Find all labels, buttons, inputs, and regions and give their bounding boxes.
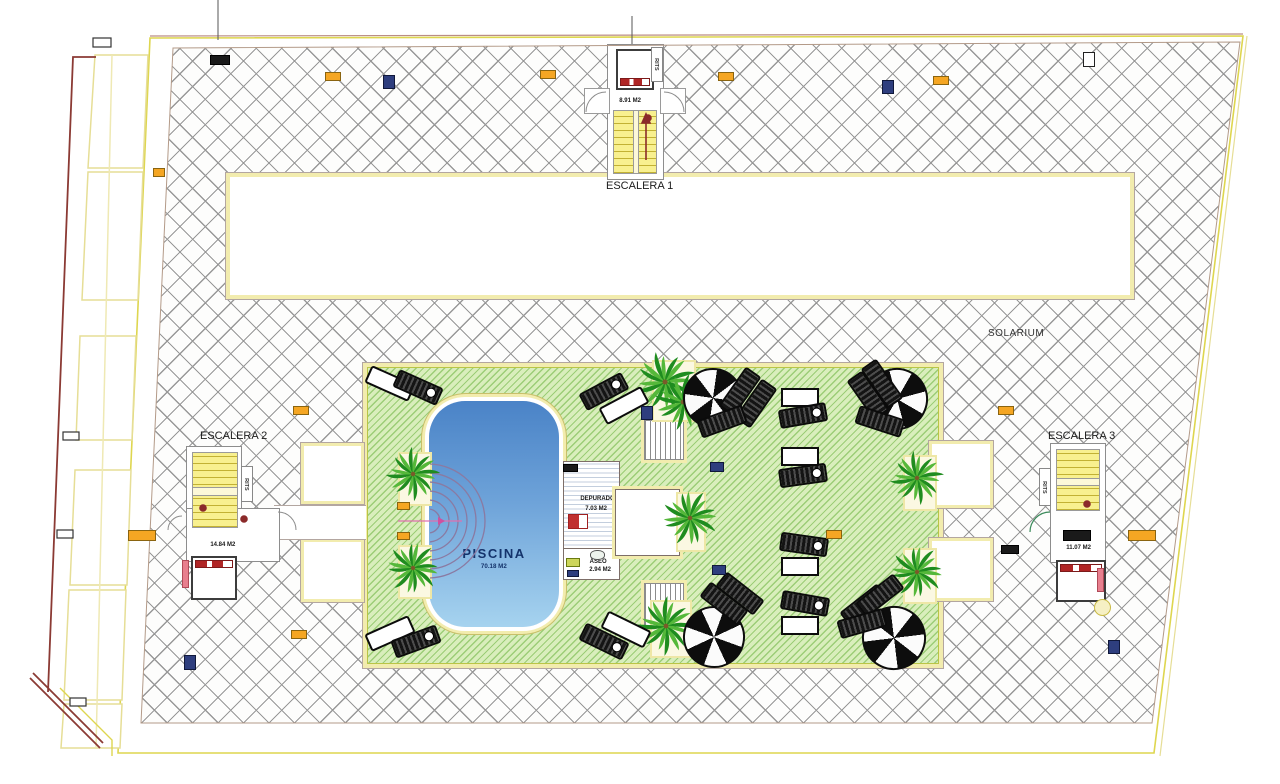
annotation-marker [325,72,341,81]
annotation-marker [712,565,726,575]
planter-box [676,492,706,552]
escalera2-stairs [192,452,238,528]
annotation-marker [291,630,307,639]
planter-box [903,548,937,604]
skylight-right-bottom [928,537,994,602]
escalera1-elevator [616,49,654,90]
escalera2-area-label: 14.84 M2 [210,542,235,548]
annotation-marker [153,168,165,177]
aseo-area-label: 2.94 M2 [589,567,611,573]
annotation-marker [397,532,410,540]
annotation-marker [128,530,156,541]
annotation-marker [1128,530,1156,541]
escalera2-rits-shaft: RITS [241,466,253,502]
annotation-marker [933,76,949,85]
annotation-marker [826,530,842,539]
annotation-marker [710,462,724,472]
depuradora-area-label: 7.03 M2 [585,506,607,512]
pool-area-label: 70.18 M2 [481,563,507,570]
skylight-right-top [928,440,994,509]
depuradora-room: DEPURADORA 7.03 M2 [563,461,620,551]
escalera2-duct [182,560,189,588]
annotation-marker [1108,640,1120,654]
annotation-marker [998,406,1014,415]
annotation-marker [184,655,196,670]
planter-box [398,452,432,506]
annotation-marker [718,72,734,81]
toilet-icon [590,550,605,560]
escalera2-elevator [191,556,237,600]
floor-plan: RITS 8.91 M2 ESCALERA 1 ESCALERA 2 RITS … [0,0,1280,784]
pool-surround: PISCINA 70.18 M2 [422,394,566,634]
annotation-marker [1083,52,1095,67]
escalera1-rits-shaft: RITS [651,47,663,82]
escalera1-area-label: 8.91 M2 [619,98,641,104]
machine-room [615,489,680,556]
annotation-marker [566,558,580,567]
escalera2-title: ESCALERA 2 [200,430,267,442]
annotation-marker [563,464,578,472]
facade-edge-line [30,57,103,748]
corridor-left [274,505,366,540]
escalera1-title: ESCALERA 1 [606,180,673,192]
escalera3-name-badge [1063,530,1091,541]
planter-box [398,545,432,599]
solarium-label: SOLARIUM [988,328,1044,339]
pool-rim: PISCINA 70.18 M2 [425,397,563,631]
pool-title: PISCINA [462,546,525,561]
skylight-left-bottom [300,538,365,603]
table [781,447,819,466]
pump-equipment [568,514,588,529]
upper-roof-void [225,172,1135,300]
annotation-marker [1001,545,1019,554]
escalera3-area-label: 11.07 M2 [1066,545,1091,551]
escalera3-stairs [1056,449,1100,511]
planter-box [903,455,937,511]
facade-joint [57,38,111,706]
left-facade-strip [61,55,148,748]
escalera3-column [1094,599,1111,616]
escalera1-wing-left [584,88,610,114]
annotation-marker [383,75,395,89]
table [781,616,819,635]
skylight-left-top [300,442,365,505]
escalera1-stairs [613,110,657,174]
annotation-marker [567,570,579,577]
elevator-mechanism [620,78,650,86]
annotation-marker [397,502,410,510]
escalera3-rits-shaft: RITS [1039,468,1051,506]
annotation-marker [210,55,230,65]
pergola-top [644,420,684,460]
annotation-marker [641,406,653,420]
escalera3-title: ESCALERA 3 [1048,430,1115,442]
annotation-marker [882,80,894,94]
pool: PISCINA 70.18 M2 [429,401,559,627]
escalera1-wing-right [660,88,686,114]
annotation-marker [540,70,556,79]
escalera3-duct [1097,568,1104,592]
annotation-marker [293,406,309,415]
table [781,557,819,576]
